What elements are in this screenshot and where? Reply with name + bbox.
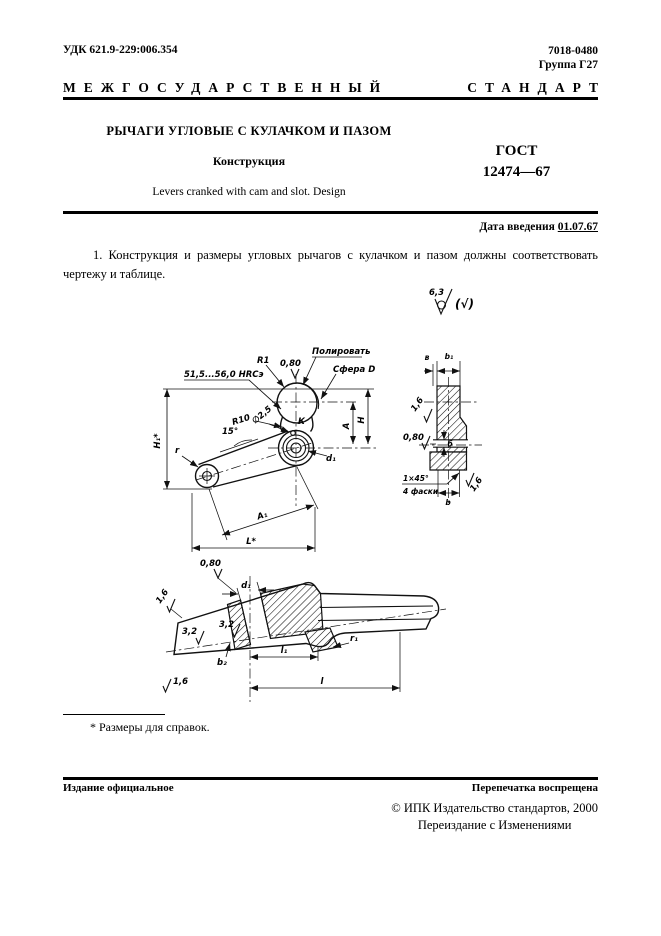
dim-label-h1: H₁* [153, 433, 163, 449]
main-view: H₁* L* A₁ A H 51,5...56,0 HRCэ R1 0,80 [153, 347, 376, 552]
chamfer-note-label: 4 фаски [403, 487, 439, 496]
dim-label-h: H [357, 416, 367, 423]
section-roughness-ul-icon [167, 599, 175, 612]
top-dim-extensions [433, 361, 460, 386]
dim-label-a: A [342, 423, 352, 431]
side-roughness-left: 1,6 [409, 396, 426, 414]
hardness-leader [249, 380, 281, 409]
dia-label: ∅2,5 [251, 404, 275, 426]
section-d1-label: d₁ [241, 581, 251, 591]
dim-label-a1: A₁ [255, 510, 269, 523]
general-roughness-suffix: (√) [455, 297, 474, 311]
cam-roughness-label: 0,80 [280, 359, 301, 369]
general-roughness-value: 6,3 [429, 288, 444, 298]
footer-rule [63, 777, 598, 780]
section-roughness-ll-icon [163, 679, 171, 692]
dim-label-l-section: l [321, 677, 325, 687]
side-roughness-left-icon [424, 409, 432, 422]
footer-right: Перепечатка воспрещена [472, 782, 598, 794]
general-roughness-mark: 6,3 (√) [429, 288, 474, 314]
angle-label: 15° [222, 427, 238, 437]
dim-label-v: в [425, 353, 430, 362]
sphere-label: Сфера D [333, 365, 375, 375]
footnote-text: * Размеры для справок. [90, 720, 210, 735]
dia-leader [269, 424, 289, 432]
copyright-line: © ИПК Издательство стандартов, 2000 [391, 801, 598, 815]
section-roughness-ll: 1,6 [173, 677, 188, 687]
neck-left-fillet [281, 417, 284, 433]
dim-label-slot: б [448, 440, 453, 449]
fork-slot-lines [318, 606, 433, 621]
technical-drawing: 6,3 (√) [0, 0, 661, 936]
section-roughness-top-icon [214, 569, 222, 578]
d1-label: d₁ [326, 454, 336, 464]
dim-label-b2: b₂ [217, 658, 227, 668]
a1-extension-lines [209, 467, 318, 540]
polish-leader [303, 357, 316, 385]
section-roughness-f2: 3,2 [219, 620, 234, 630]
r1-label: R1 [257, 356, 269, 366]
copyright-block: © ИПК Издательство стандартов, 2000 Пере… [391, 800, 598, 834]
chamfer-label: 1×45° [403, 474, 429, 483]
cam-roughness-icon [291, 369, 299, 378]
k-point-label: К [298, 417, 306, 427]
footer-row: Издание официальное Перепечатка воспреще… [63, 782, 598, 794]
hardness-label: 51,5...56,0 HRCэ [184, 370, 264, 380]
side-section-view: в b₁ 1,6 0,80 б 1×45° 4 фаски b 1,6 [402, 352, 485, 507]
hatch-prong [305, 628, 338, 652]
roughness-circle-icon [438, 301, 446, 309]
side-roughness-slot: 0,80 [403, 433, 424, 443]
dim-label-l1: l₁ [281, 646, 288, 656]
dim-label-b1: b₁ [445, 352, 454, 361]
dim-label-r1: r₁ [350, 634, 358, 644]
r-leader [182, 456, 198, 467]
section-roughness-f1-icon [196, 631, 204, 644]
section-roughness-f1: 3,2 [182, 627, 197, 637]
small-hub-cross [199, 468, 215, 484]
arm-section-view: 0,80 d₁ 1,6 3,2 3,2 b₂ 1,6 [154, 559, 446, 702]
chamfer-leader [435, 473, 459, 484]
section-roughness-ul: 1,6 [154, 588, 171, 606]
section-roughness-leader [218, 578, 236, 593]
dim-label-b: b [445, 498, 451, 507]
arm-bottom-edge [213, 465, 302, 488]
r10-label: R10 [231, 413, 252, 428]
d1-leader [308, 451, 327, 456]
section-roughness-top: 0,80 [200, 559, 221, 569]
side-roughness-right: 1,6 [468, 476, 485, 494]
reissue-line: Переиздание с Изменениями [418, 818, 572, 832]
footnote-rule [63, 714, 165, 715]
gost-document-page: УДК 621.9-229:006.354 7018-0480 Группа Г… [0, 0, 661, 936]
a1-dim-line [222, 505, 314, 535]
footer-left: Издание официальное [63, 782, 174, 794]
arm-axis-centerline [196, 443, 312, 480]
dim-label-l: L* [246, 537, 256, 547]
sphere-leader [321, 374, 336, 399]
polish-label: Полировать [312, 347, 370, 357]
r-label: r [175, 446, 180, 456]
